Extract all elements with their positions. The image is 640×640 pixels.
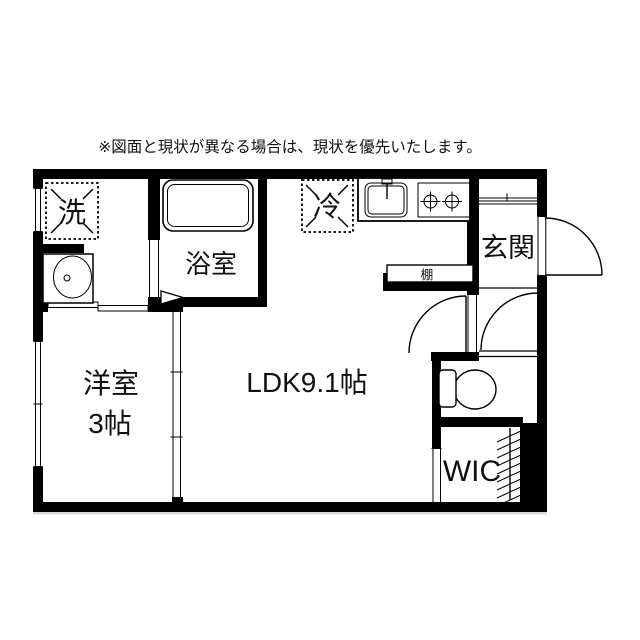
label-washing-machine: 洗 (58, 197, 86, 228)
toilet-door-icon (479, 351, 537, 357)
disclaimer-text: ※図面と現状が異なる場合は、現状を優先いたします。 (98, 138, 481, 156)
bathtub-icon (163, 180, 253, 231)
label-refrigerator: 冷 (313, 191, 341, 222)
washroom-window-icon (34, 188, 43, 232)
floorplan-drawing: ※図面と現状が異なる場合は、現状を優先いたします。 (0, 0, 640, 640)
entrance-window-icon (479, 194, 537, 205)
kitchen-counter-icon (358, 178, 470, 221)
label-western-room: 洋室 (83, 368, 139, 399)
entrance-door-icon (538, 217, 602, 275)
toilet-icon (439, 370, 496, 409)
wic-door-icon (432, 448, 442, 502)
label-shelf: 棚 (421, 267, 434, 282)
room-partition (171, 312, 183, 502)
label-western-room-size: 3帖 (88, 408, 132, 439)
ldk-door-icon (409, 295, 477, 353)
western-room-window-icon (34, 341, 43, 467)
label-bathroom: 浴室 (185, 249, 237, 279)
hallway-door-icon (479, 288, 538, 350)
label-wic: WIC (443, 455, 501, 488)
wall-shadow (33, 512, 547, 515)
label-ldk: LDK9.1帖 (246, 367, 367, 398)
vanity-sink-icon (43, 254, 93, 303)
label-entrance: 玄関 (481, 233, 535, 263)
floorplan-page: ※図面と現状が異なる場合は、現状を優先いたします。 (0, 0, 640, 640)
bathroom-door-icon (150, 240, 184, 304)
